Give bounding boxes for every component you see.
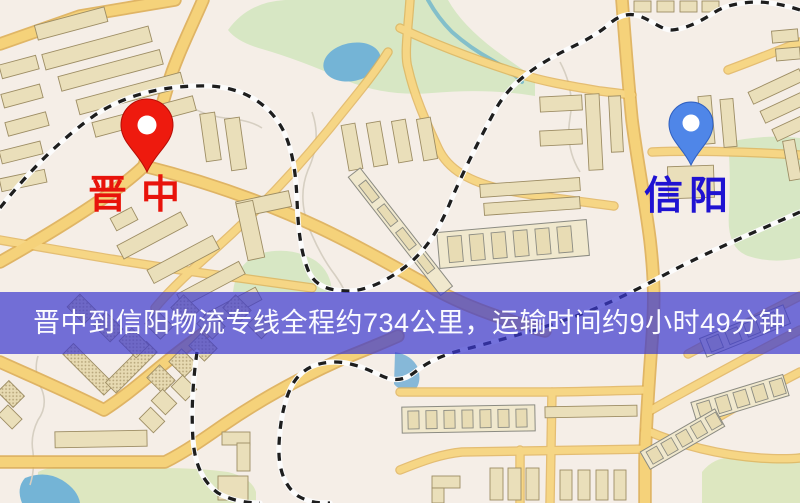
origin-city-label: 晋中 <box>88 176 194 215</box>
map-canvas <box>0 0 800 503</box>
destination-city-label: 信阳 <box>644 177 734 216</box>
route-summary-banner: 晋中到信阳物流专线全程约734公里，运输时间约9小时49分钟. <box>0 292 800 354</box>
route-summary-text: 晋中到信阳物流专线全程约734公里，运输时间约9小时49分钟. <box>33 301 794 340</box>
logistics-route-map: 晋中 信阳 晋中到信阳物流专线全程约734公里，运输时间约9小时49分钟. <box>0 0 800 503</box>
